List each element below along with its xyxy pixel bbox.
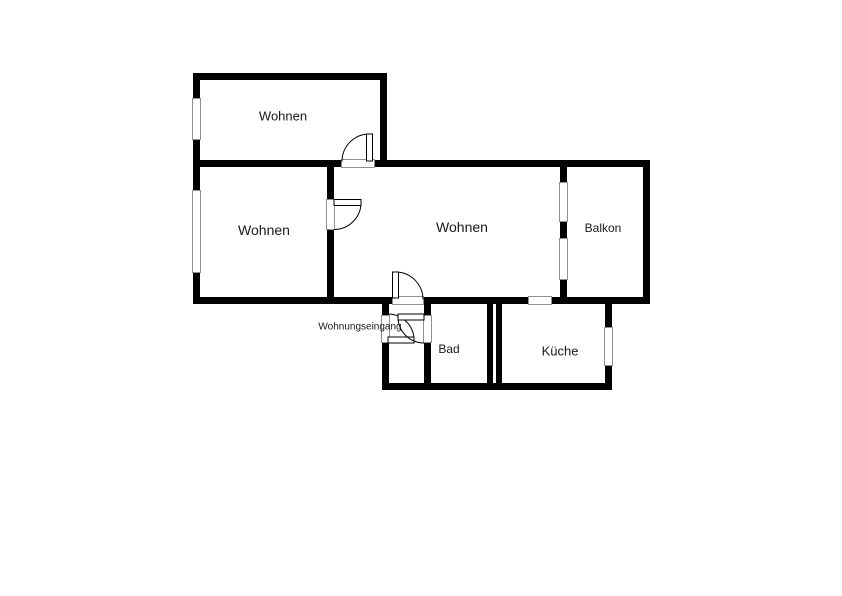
room-label-wohnen-left: Wohnen — [238, 222, 290, 238]
wall-top-room-east — [380, 73, 387, 167]
wall-shaft-east — [496, 297, 502, 390]
wall-balkon-east — [643, 160, 650, 304]
wall-hall-bad-divider — [424, 297, 431, 390]
window-top-room-west — [192, 98, 201, 140]
door-sill-bad — [423, 315, 432, 343]
wall-shaft-west — [487, 297, 493, 390]
room-label-kueche: Küche — [542, 344, 579, 359]
wall-bottom-south — [382, 383, 612, 390]
door-swing-arc-wohnen-divider — [334, 203, 361, 230]
door-swing-arc-top-room — [342, 134, 370, 162]
door-sill-top-room — [341, 159, 375, 168]
window-kueche-north — [528, 296, 552, 305]
room-label-bad: Bad — [438, 342, 459, 356]
door-leaf-entrance — [388, 337, 414, 343]
wall-wohnen-divider — [327, 160, 334, 304]
door-sill-wohnen-main — [392, 296, 424, 305]
window-kueche-east — [604, 327, 613, 366]
wall-band-north — [193, 160, 650, 167]
door-swing-arc-bad — [398, 317, 424, 343]
window-balkon-upper — [559, 182, 568, 222]
room-label-balkon: Balkon — [585, 221, 622, 235]
door-leaf-top-room — [367, 134, 373, 161]
door-leaf-bad — [398, 314, 424, 320]
window-wohnen-left-west — [192, 190, 201, 273]
floorplan-canvas: Wohnen Wohnen Wohnen Balkon Bad Küche Wo… — [0, 0, 842, 596]
window-balkon-lower — [559, 238, 568, 280]
room-label-wohnen-main: Wohnen — [436, 219, 488, 235]
door-leaf-wohnen-divider — [334, 200, 361, 206]
door-sill-wohnen-divider — [326, 199, 335, 230]
door-leaf-wohnen-main — [393, 272, 399, 298]
wall-hall-west — [382, 297, 389, 390]
room-label-entrance: Wohnungseingang — [318, 322, 401, 333]
room-label-wohnen-top: Wohnen — [259, 109, 307, 124]
wall-top-room-north — [193, 73, 383, 80]
